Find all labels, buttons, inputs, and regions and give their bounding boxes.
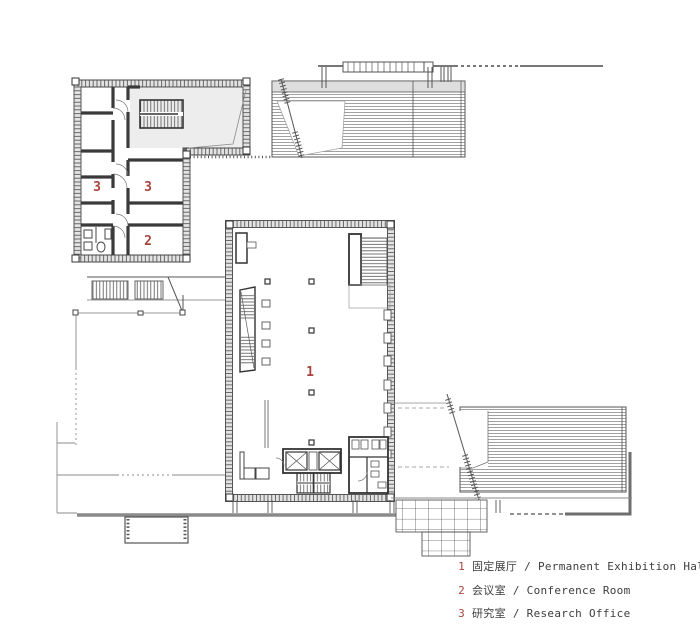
hall-stair-ne	[349, 234, 390, 308]
hall-stair-south	[297, 473, 330, 493]
wing-toilets	[84, 227, 111, 252]
hall-stair-west	[240, 287, 255, 372]
legend-item-exhibition-hall: 1 固定展厅 / Permanent Exhibition Hall	[457, 555, 700, 579]
legend-item-conference-room: 2 会议室 / Conference Room	[457, 579, 700, 603]
exhibition-hall: 1	[226, 221, 395, 502]
courtyard-lines	[57, 315, 229, 513]
legend-label: 固定展厅 / Permanent Exhibition Hall	[472, 555, 700, 579]
room-label-conference: 2	[144, 234, 152, 249]
hall-toilets	[349, 437, 388, 493]
right-louver-roof	[391, 394, 630, 514]
legend: 1 固定展厅 / Permanent Exhibition Hall 2 会议室…	[457, 555, 700, 626]
legend-number: 2	[457, 579, 465, 603]
floor-plan: 1 3 3 2	[0, 0, 700, 636]
hall-columns	[265, 279, 314, 445]
legend-item-research-office: 3 研究室 / Research Office	[457, 602, 700, 626]
sunken-pit	[125, 517, 188, 543]
elevators	[283, 449, 341, 473]
legend-number: 3	[457, 602, 465, 626]
left-office-wing	[72, 78, 250, 262]
paving-grid	[396, 500, 487, 556]
legend-label: 会议室 / Conference Room	[472, 579, 631, 603]
room-label-research-left: 3	[93, 180, 101, 195]
wing-staircase	[140, 100, 183, 128]
room-label-exhibition-hall: 1	[306, 365, 314, 380]
legend-number: 1	[457, 555, 465, 579]
site-walkway	[77, 498, 632, 556]
room-label-research-right: 3	[144, 180, 152, 195]
floor-plan-drawing: 1 3 3 2	[0, 0, 700, 636]
hall-benches	[240, 452, 284, 479]
outdoor-stair	[73, 277, 232, 315]
legend-label: 研究室 / Research Office	[472, 602, 631, 626]
